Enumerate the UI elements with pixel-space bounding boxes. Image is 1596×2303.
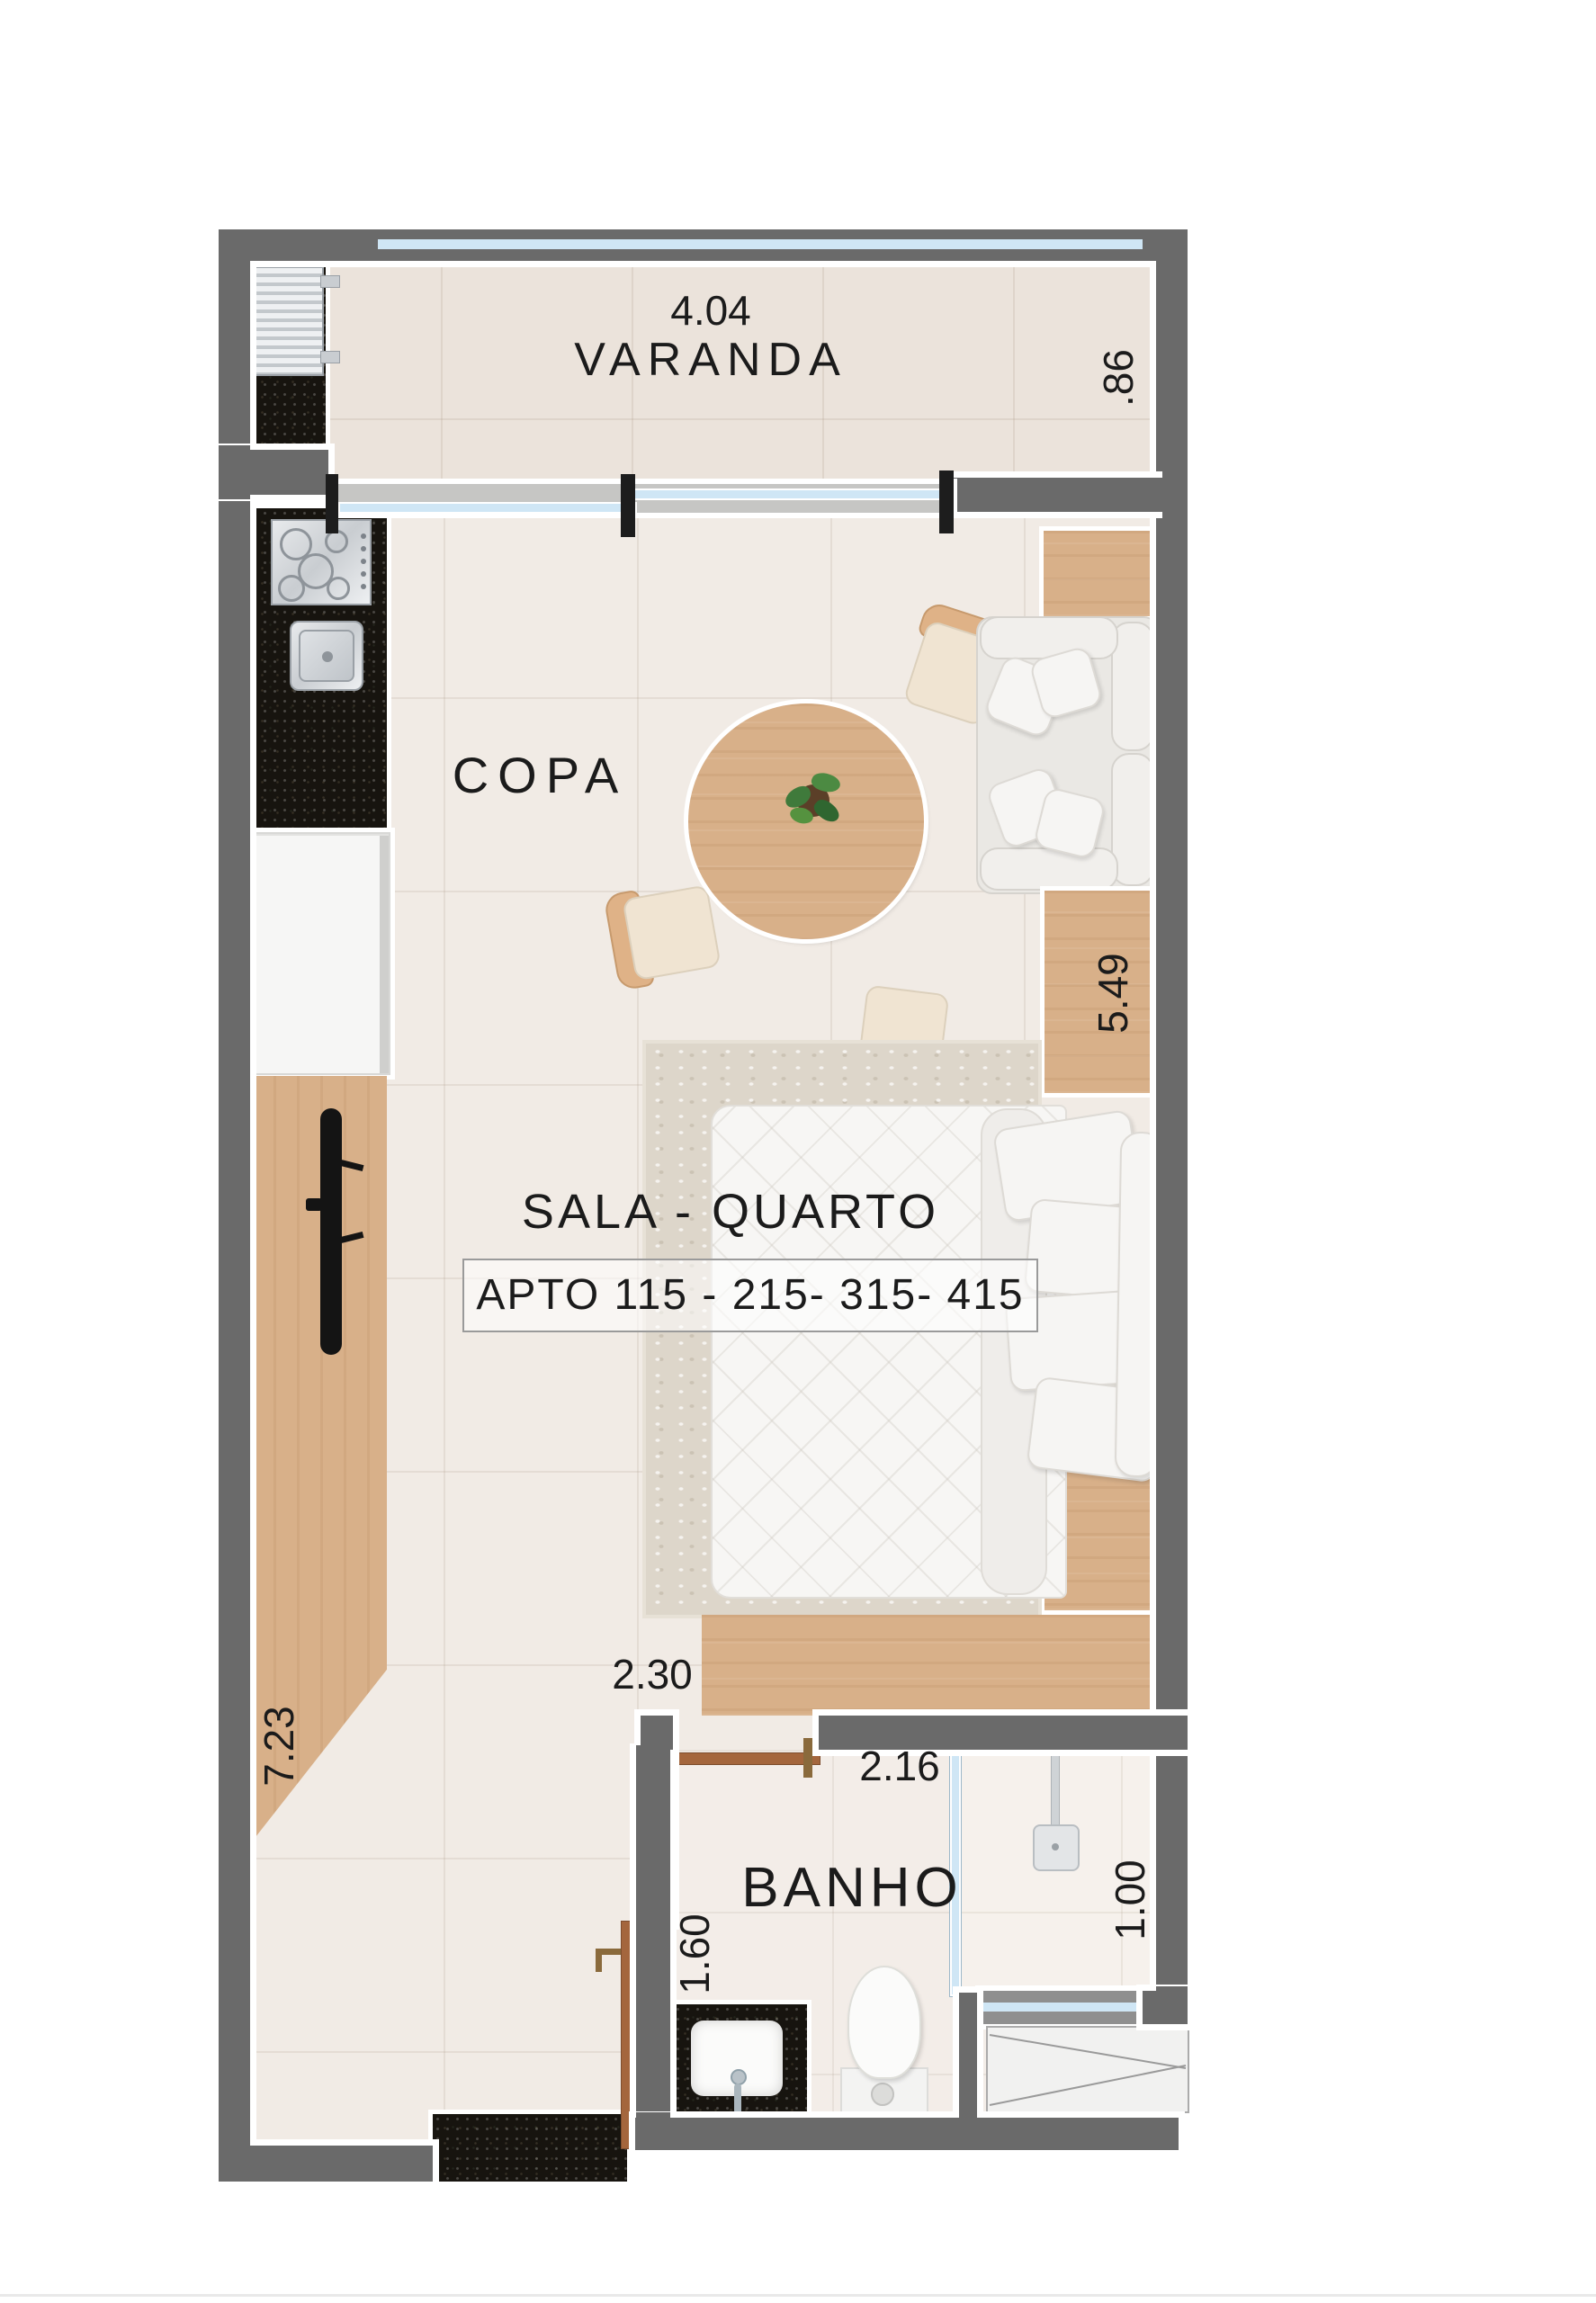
laundry-tank-icon	[254, 266, 324, 376]
shower-window-glass	[981, 2003, 1143, 2012]
room-label-copa: COPA	[409, 748, 670, 802]
tv-stand-icon	[306, 1198, 322, 1211]
laundry-faucet-icon-2	[320, 351, 340, 363]
bathroom-door-icon	[673, 1752, 820, 1765]
apto-box: APTO 115 - 215- 315- 415	[462, 1259, 1038, 1332]
wall-joint	[219, 2139, 250, 2182]
sofa-icon	[976, 616, 1156, 891]
wall-joint	[219, 445, 250, 499]
wall-left	[219, 229, 250, 2182]
dining-chair-left	[603, 874, 729, 996]
wall-joint	[219, 232, 250, 286]
entry-threshold	[433, 2114, 627, 2182]
room-label-varanda: VARANDA	[504, 335, 918, 385]
wall-joint	[1156, 1986, 1188, 2024]
sliding-door-glass-right	[630, 490, 950, 498]
dim-living-left: 7.23	[256, 1674, 301, 1818]
sliding-door-jamb-mid	[621, 474, 635, 537]
dim-shower: 1.00	[1107, 1828, 1152, 1972]
wall-joint	[636, 2112, 670, 2150]
dim-banho-entry: 1.60	[672, 1882, 717, 2026]
window-top-glass	[378, 239, 1143, 249]
wall-joint	[959, 2110, 977, 2150]
shower-head-icon	[1033, 1824, 1080, 1871]
sliding-door-glass-left	[340, 504, 635, 512]
cooktop-icon	[271, 519, 372, 605]
bathroom-door-hinge-icon	[803, 1738, 812, 1778]
shower-arm-icon	[1051, 1750, 1060, 1831]
dim-varanda-width: 4.04	[630, 288, 792, 333]
plant-icon	[785, 772, 842, 829]
wall-shower-stub	[959, 1993, 977, 2119]
window-icon	[986, 2026, 1189, 2113]
wall-joint	[636, 1745, 670, 1790]
sliding-door-jamb-left	[326, 474, 338, 533]
wall-divider-right	[952, 478, 1156, 512]
apto-text: APTO 115 - 215- 315- 415	[476, 1274, 1024, 1317]
tv-icon	[320, 1108, 342, 1355]
laundry-faucet-icon	[320, 275, 340, 288]
wall-joint	[1152, 478, 1188, 512]
wall-living-bottom	[219, 2146, 433, 2182]
toilet-icon	[840, 1966, 927, 2123]
sideboard-icon	[1044, 531, 1153, 616]
wall-bathroom-left	[636, 1750, 670, 2150]
vanity-faucet-spout-icon	[734, 2083, 741, 2114]
bed-icon	[711, 1105, 1156, 1595]
sliding-door-jamb-right	[939, 470, 954, 533]
room-label-sala-quarto: SALA - QUARTO	[474, 1186, 987, 1238]
room-label-banho: BANHO	[681, 1859, 1023, 1918]
dim-living-right: 5.49	[1090, 921, 1135, 1065]
dim-hall: 2.30	[571, 1652, 733, 1697]
kitchen-sink-icon	[290, 621, 363, 691]
wall-joint	[1152, 1716, 1188, 1750]
refrigerator-icon	[250, 832, 390, 1075]
floorplan-canvas: 4.04 VARANDA .86 COPA 5.49 SALA - QUARTO…	[0, 0, 1596, 2303]
entry-door-handle-icon-2	[596, 1949, 602, 1972]
wall-bathroom-bottom	[635, 2118, 1179, 2150]
hall-wood-floor	[702, 1615, 1156, 1716]
dim-banho-width: 2.16	[819, 1743, 981, 1788]
entry-door-icon	[621, 1921, 634, 2149]
page-edge-line	[0, 2294, 1596, 2297]
wall-joint	[1156, 232, 1188, 286]
dim-varanda-depth: .86	[1096, 306, 1141, 450]
